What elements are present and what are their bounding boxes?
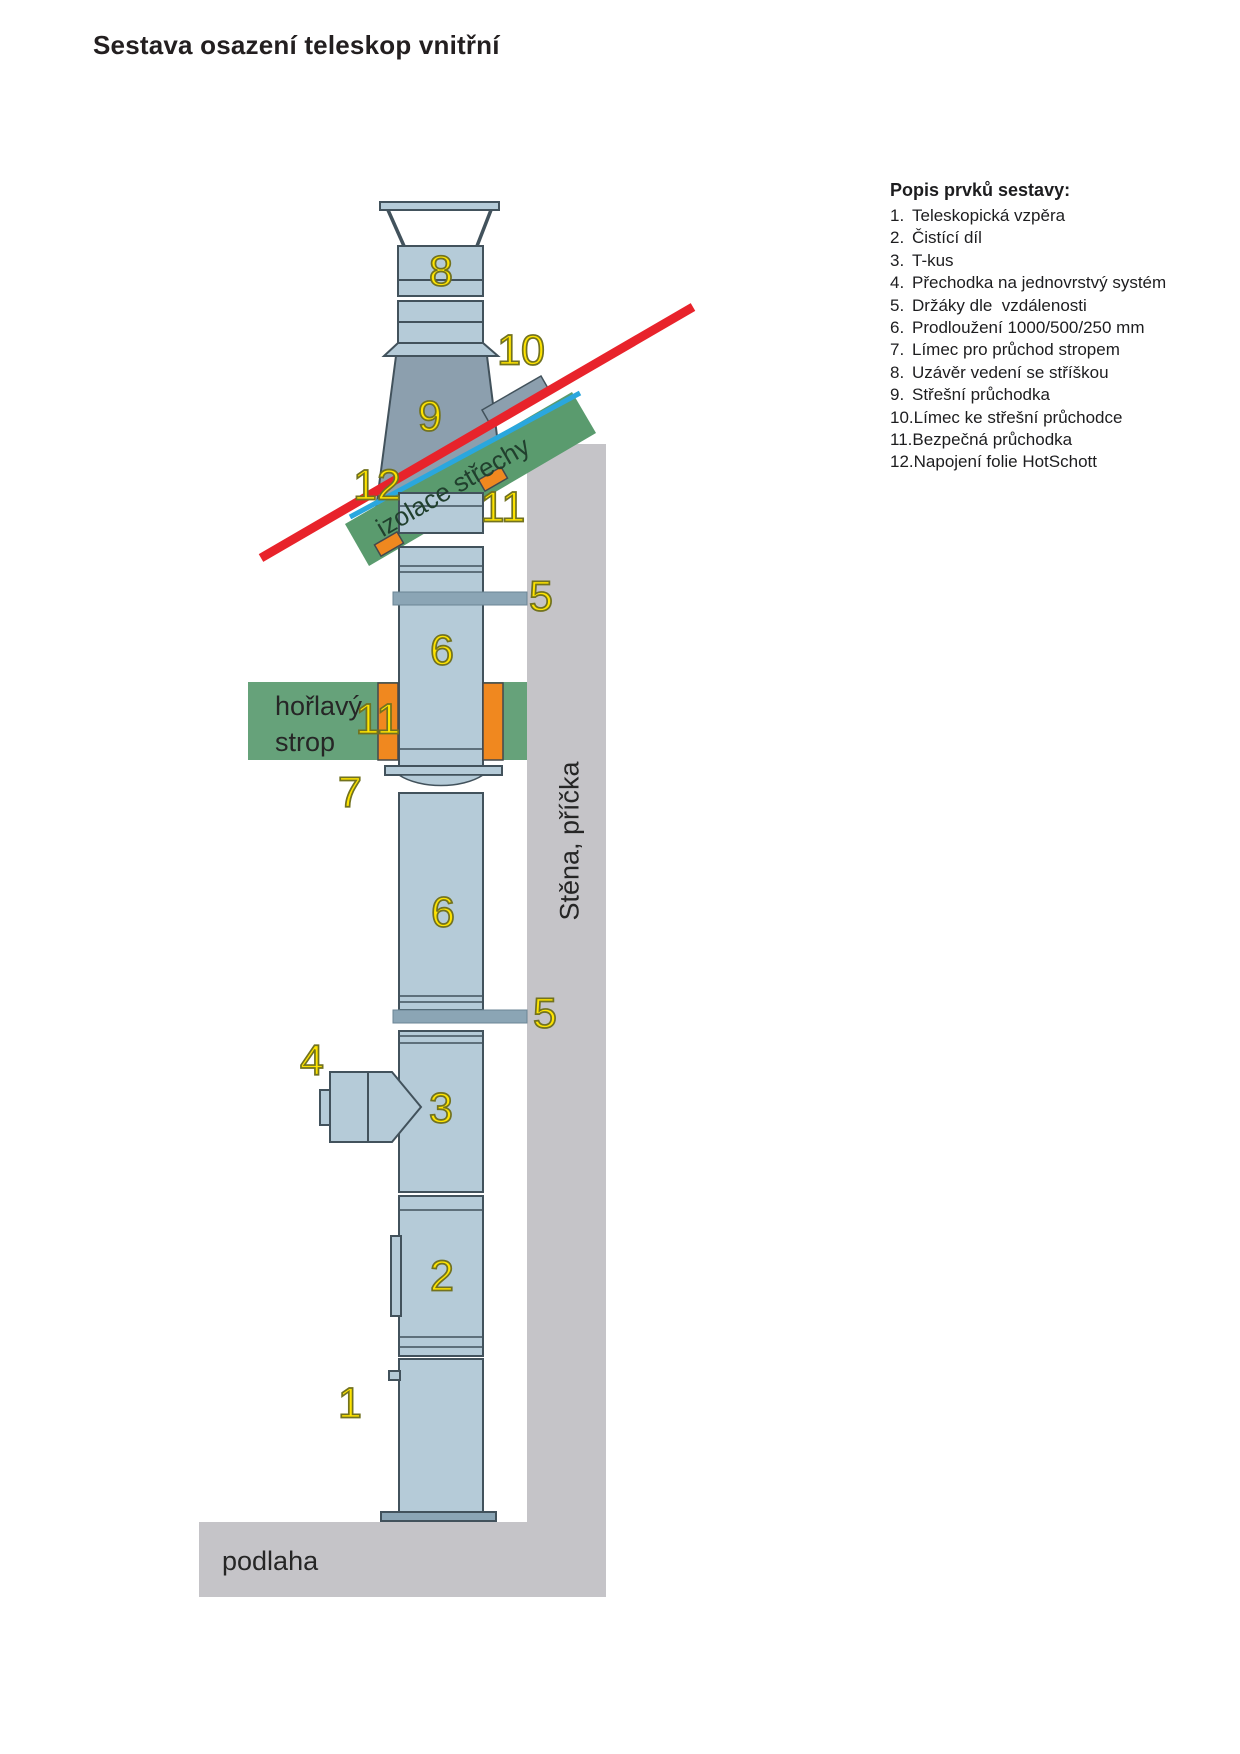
- flammable-ceiling-label-line1: hořlavý: [275, 688, 362, 724]
- legend-item-7: 7.Límec pro průchod stropem: [890, 339, 1190, 361]
- callout-11-roof: 11: [481, 487, 526, 530]
- legend-item-8: 8.Uzávěr vedení se stříškou: [890, 362, 1190, 384]
- base-pipe-section: [399, 1359, 483, 1512]
- legend-item-num: 1.: [890, 205, 912, 227]
- legend-item-num: 4.: [890, 272, 912, 294]
- legend-item-11: 11.Bezpečná průchodka: [890, 429, 1190, 451]
- legend-item-label: Uzávěr vedení se stříškou: [912, 362, 1109, 384]
- wall-bracket-upper: [393, 592, 527, 605]
- flammable-ceiling-label: hořlavý strop: [275, 688, 362, 760]
- legend-item-num: 9.: [890, 384, 912, 406]
- legend-item-label: Prodloužení 1000/500/250 mm: [912, 317, 1145, 339]
- legend-item-num: 8.: [890, 362, 912, 384]
- legend-item-label: T-kus: [912, 250, 954, 272]
- callout-3: 3: [429, 1088, 453, 1131]
- callout-10: 10: [497, 330, 545, 373]
- legend-item-num: 2.: [890, 227, 912, 249]
- legend-item-2: 2.Čistící díl: [890, 227, 1190, 249]
- callout-12: 12: [353, 465, 401, 508]
- legend-item-10: 10.Límec ke střešní průchodce: [890, 407, 1190, 429]
- legend-item-label: Přechodka na jednovrstvý systém: [912, 272, 1166, 294]
- legend-item-6: 6.Prodloužení 1000/500/250 mm: [890, 317, 1190, 339]
- legend-item-num: 11.: [890, 429, 912, 451]
- callout-11-ceiling: 11: [356, 699, 401, 742]
- callout-5-upper: 5: [529, 576, 553, 619]
- callout-4: 4: [300, 1040, 324, 1083]
- legend-item-num: 10.: [890, 407, 914, 429]
- legend-item-5: 5.Držáky dle vzdálenosti: [890, 295, 1190, 317]
- collar-skirt: [384, 343, 498, 356]
- cap-leg-right: [477, 210, 491, 246]
- callout-6-upper: 6: [430, 630, 454, 673]
- legend: Popis prvků sestavy: 1.Teleskopická vzpě…: [890, 180, 1190, 474]
- callout-5-lower: 5: [533, 993, 557, 1036]
- wall-bracket-lower: [393, 1010, 527, 1023]
- cap-roof-plate: [380, 202, 499, 210]
- ceiling-safety-collar-right: [483, 683, 503, 760]
- legend-item-label: Čistící díl: [912, 227, 982, 249]
- base-plate: [381, 1512, 496, 1521]
- callout-7: 7: [338, 772, 362, 815]
- adapter-end-cap: [320, 1090, 330, 1125]
- adapter-body: [330, 1072, 368, 1142]
- legend-heading: Popis prvků sestavy:: [890, 180, 1190, 201]
- floor-label: podlaha: [222, 1546, 318, 1577]
- legend-item-label: Límec ke střešní průchodce: [914, 407, 1123, 429]
- cleaning-door: [391, 1236, 401, 1316]
- legend-item-label: Teleskopická vzpěra: [912, 205, 1065, 227]
- legend-item-num: 3.: [890, 250, 912, 272]
- callout-2: 2: [430, 1256, 454, 1299]
- legend-item-label: Bezpečná průchodka: [912, 429, 1072, 451]
- legend-item-num: 6.: [890, 317, 912, 339]
- legend-item-label: Střešní průchodka: [912, 384, 1050, 406]
- page: Sestava osazení teleskop vnitřní: [0, 0, 1240, 1754]
- callout-6-lower: 6: [431, 892, 455, 935]
- legend-item-9: 9.Střešní průchodka: [890, 384, 1190, 406]
- ceiling-collar-bowl: [399, 775, 483, 786]
- legend-item-1: 1.Teleskopická vzpěra: [890, 205, 1190, 227]
- legend-item-3: 3.T-kus: [890, 250, 1190, 272]
- legend-item-12: 12.Napojení folie HotSchott: [890, 451, 1190, 473]
- ceiling-collar-plate: [385, 766, 502, 775]
- telescopic-strut-clamp: [389, 1371, 400, 1380]
- callout-1: 1: [338, 1383, 362, 1426]
- flammable-ceiling-label-line2: strop: [275, 724, 362, 760]
- cap-leg-left: [388, 210, 404, 246]
- callout-9: 9: [418, 396, 442, 439]
- wall-label: Stěna, příčka: [555, 761, 586, 920]
- legend-item-label: Límec pro průchod stropem: [912, 339, 1120, 361]
- legend-item-4: 4.Přechodka na jednovrstvý systém: [890, 272, 1190, 294]
- legend-item-num: 12.: [890, 451, 914, 473]
- legend-item-num: 5.: [890, 295, 912, 317]
- legend-item-label: Držáky dle vzdálenosti: [912, 295, 1087, 317]
- callout-8: 8: [429, 251, 453, 294]
- legend-item-num: 7.: [890, 339, 912, 361]
- legend-item-label: Napojení folie HotSchott: [914, 451, 1097, 473]
